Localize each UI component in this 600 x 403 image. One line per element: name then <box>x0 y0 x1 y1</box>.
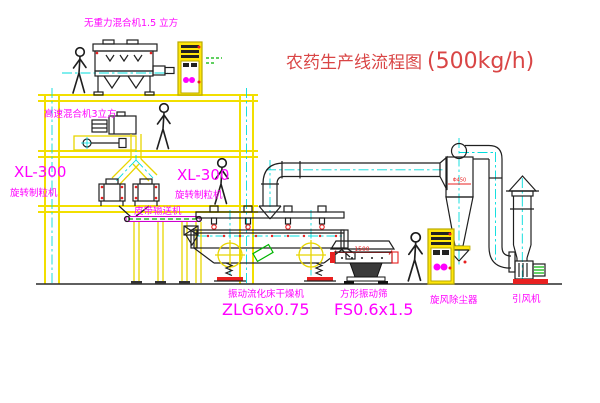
label-sieve-model: FS0.6x1.5 <box>334 300 413 319</box>
label-dryer-model: ZLG6x0.75 <box>222 300 310 319</box>
label-granulator-center-name: 旋转制粒机 <box>175 189 223 201</box>
indicator-dot <box>449 233 452 236</box>
diagram-canvas: Φ450 <box>0 0 600 403</box>
label-granulator-left-model: XL-300 <box>14 163 66 181</box>
control-cabinet-bottom <box>428 229 454 284</box>
label-cyclone-name: 旋风除尘器 <box>430 294 478 306</box>
motor-symbol-icon <box>434 264 441 271</box>
cad-flow-diagram: Φ450 <box>0 0 600 403</box>
label-sieve-name: 方形振动筛 <box>340 288 388 300</box>
label-fan-name: 引风机 <box>512 293 541 305</box>
fan-base <box>513 279 548 284</box>
page-title-capacity: (500kg/h) <box>427 49 534 74</box>
label-granulator-left-name: 旋转制粒机 <box>10 187 58 199</box>
motor-symbol-icon <box>183 77 189 83</box>
label-high-speed-mixer: 高速混合机3立方 <box>44 108 117 120</box>
motor-symbol-icon <box>189 77 195 83</box>
indicator-dot <box>198 46 201 49</box>
label-granulator-center-model: XL-300 <box>177 166 229 184</box>
motor-symbol-icon <box>441 264 448 271</box>
label-belt-conveyor: 皮带输送机 <box>134 205 182 217</box>
cyclone-dimension-label: Φ450 <box>453 178 466 184</box>
page-title: 农药生产线流程图(500kg/h) <box>286 49 534 74</box>
label-dryer-name: 振动流化床干燥机 <box>228 288 305 300</box>
page-title-text: 农药生产线流程图 <box>286 53 422 73</box>
label-gravity-mixer: 无重力混合机1.5 立方 <box>84 17 178 29</box>
